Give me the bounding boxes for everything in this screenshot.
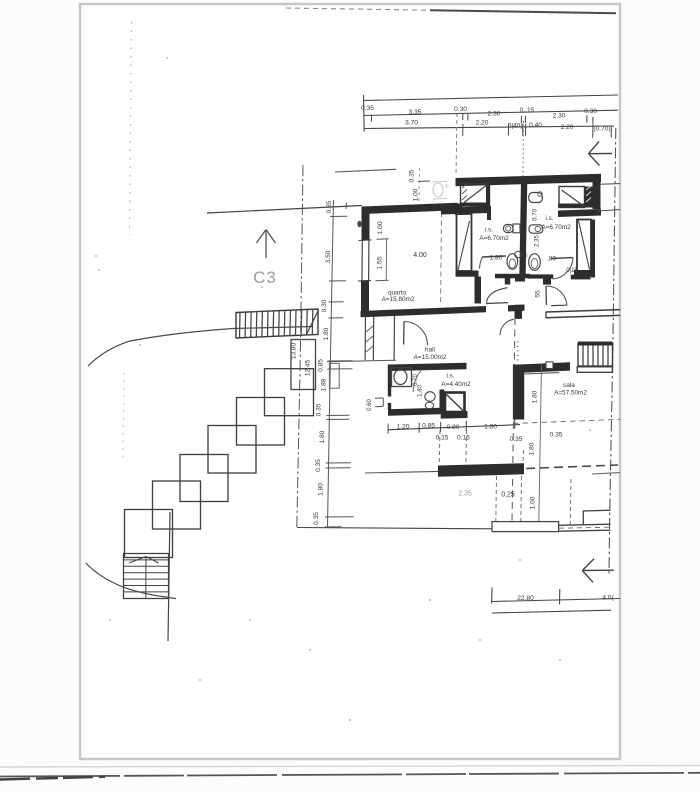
svg-text:2.20: 2.20 bbox=[476, 120, 489, 127]
svg-text:0.60: 0.60 bbox=[367, 399, 373, 411]
svg-text:0|40|: 0|40| bbox=[508, 123, 523, 130]
svg-text:A=6.70m2: A=6.70m2 bbox=[479, 235, 509, 242]
svg-text:1.80: 1.80 bbox=[490, 255, 503, 262]
svg-text:.80: .80 bbox=[547, 256, 556, 263]
svg-text:0.70: 0.70 bbox=[532, 208, 539, 221]
svg-text:0.35: 0.35 bbox=[510, 436, 523, 443]
svg-text:0.35: 0.35 bbox=[361, 105, 374, 112]
svg-text:1.00: 1.00 bbox=[530, 496, 537, 509]
svg-text:i.s.: i.s. bbox=[485, 227, 493, 234]
svg-text:A=4.40m2: A=4.40m2 bbox=[441, 381, 471, 388]
svg-text:1.80: 1.80 bbox=[318, 483, 325, 496]
svg-text:1.88: 1.88 bbox=[321, 378, 328, 391]
svg-text:0.35: 0.35 bbox=[326, 200, 333, 213]
svg-text:i.s.: i.s. bbox=[447, 373, 455, 380]
svg-text:0.30: 0.30 bbox=[584, 108, 597, 115]
svg-text:3.50: 3.50 bbox=[325, 250, 332, 263]
svg-text:0.40: 0.40 bbox=[529, 122, 542, 129]
svg-text:1.80: 1.80 bbox=[319, 430, 326, 443]
svg-text:1.40: 1.40 bbox=[418, 385, 424, 397]
svg-text:A=15.00m2: A=15.00m2 bbox=[414, 354, 447, 361]
svg-text:A=15.80m2: A=15.80m2 bbox=[382, 296, 415, 303]
svg-text:4.0(: 4.0( bbox=[602, 595, 614, 602]
svg-text:2.20: 2.20 bbox=[561, 124, 574, 131]
svg-text:C3: C3 bbox=[253, 268, 277, 287]
svg-text:1.80: 1.80 bbox=[532, 390, 539, 403]
svg-text:2.30: 2.30 bbox=[488, 111, 501, 118]
svg-text:0.80: 0.80 bbox=[447, 424, 460, 431]
svg-text:sala: sala bbox=[563, 382, 575, 389]
svg-text:0.15: 0.15 bbox=[457, 435, 470, 442]
svg-text:0.30: 0.30 bbox=[321, 299, 328, 312]
svg-text:hall: hall bbox=[425, 347, 435, 354]
svg-text:12.45: 12.45 bbox=[305, 359, 312, 376]
svg-text:0.35: 0.35 bbox=[313, 512, 320, 525]
svg-text:1.20: 1.20 bbox=[397, 423, 410, 430]
svg-text:4.00: 4.00 bbox=[413, 252, 427, 259]
svg-text:15: 15 bbox=[521, 253, 527, 259]
svg-text:0.85: 0.85 bbox=[318, 359, 325, 372]
svg-text:1.80: 1.80 bbox=[529, 442, 536, 455]
svg-text:3.35: 3.35 bbox=[409, 109, 422, 116]
svg-text:0,25: 0,25 bbox=[501, 492, 515, 499]
svg-text:2.35: 2.35 bbox=[534, 234, 541, 247]
svg-text:3.70: 3.70 bbox=[405, 120, 418, 127]
svg-text:0.15: 0.15 bbox=[436, 435, 449, 442]
svg-text:2.35: 2.35 bbox=[458, 491, 472, 498]
svg-text:|0.70|: |0.70| bbox=[594, 126, 610, 133]
svg-text:i.s.: i.s. bbox=[546, 215, 554, 222]
svg-text:0.30: 0.30 bbox=[454, 106, 467, 113]
svg-text:0.35: 0.35 bbox=[550, 432, 563, 439]
svg-text:1.00: 1.00 bbox=[413, 188, 420, 201]
svg-text:A=57.50m2: A=57.50m2 bbox=[554, 389, 587, 396]
svg-text:0.35: 0.35 bbox=[315, 459, 322, 472]
svg-text:0.35: 0.35 bbox=[409, 169, 416, 182]
svg-text:1.80: 1.80 bbox=[484, 424, 497, 431]
svg-text:22.80: 22.80 bbox=[517, 595, 534, 602]
svg-text:0|15: 0|15 bbox=[566, 268, 578, 274]
svg-text:0.85: 0.85 bbox=[422, 423, 435, 430]
svg-text:1.55: 1.55 bbox=[377, 256, 384, 269]
svg-text:55: 55 bbox=[535, 290, 542, 298]
svg-text:1.00: 1.00 bbox=[377, 221, 384, 234]
svg-text:0.70: 0.70 bbox=[413, 374, 419, 386]
svg-text:0..15: 0..15 bbox=[520, 107, 535, 114]
svg-text:A=6.70m2: A=6.70m2 bbox=[541, 224, 571, 231]
svg-text:1.80: 1.80 bbox=[323, 327, 330, 340]
svg-text:0.35: 0.35 bbox=[316, 403, 323, 416]
svg-text:2.30: 2.30 bbox=[553, 113, 566, 120]
